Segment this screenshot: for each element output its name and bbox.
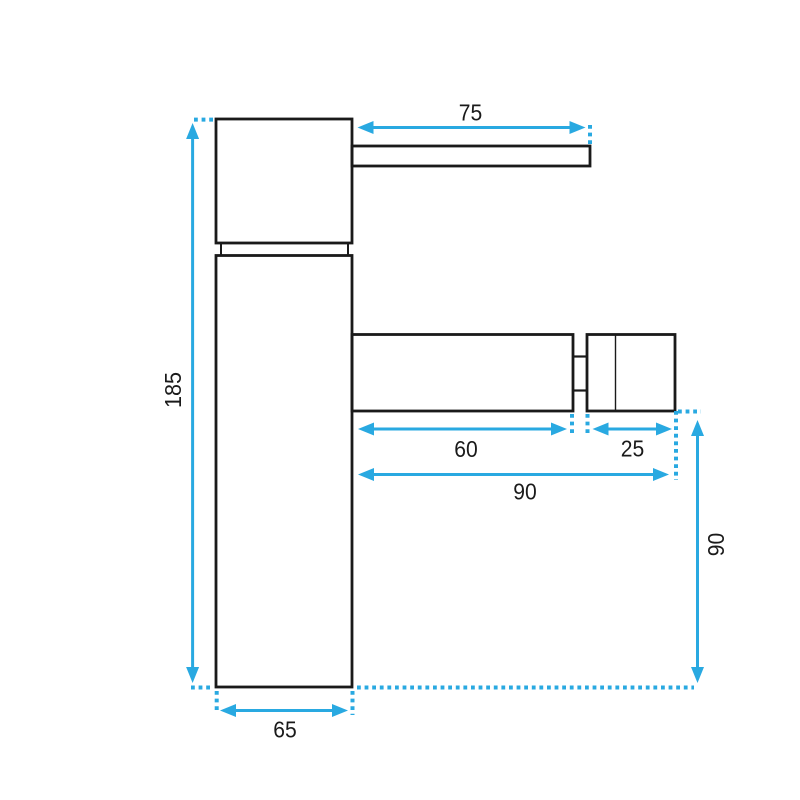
svg-text:75: 75 xyxy=(459,100,483,126)
svg-text:185: 185 xyxy=(160,372,186,408)
svg-text:90: 90 xyxy=(703,533,729,557)
svg-text:65: 65 xyxy=(273,717,297,743)
svg-text:60: 60 xyxy=(454,436,478,462)
svg-text:25: 25 xyxy=(621,436,645,462)
svg-text:90: 90 xyxy=(513,479,537,505)
